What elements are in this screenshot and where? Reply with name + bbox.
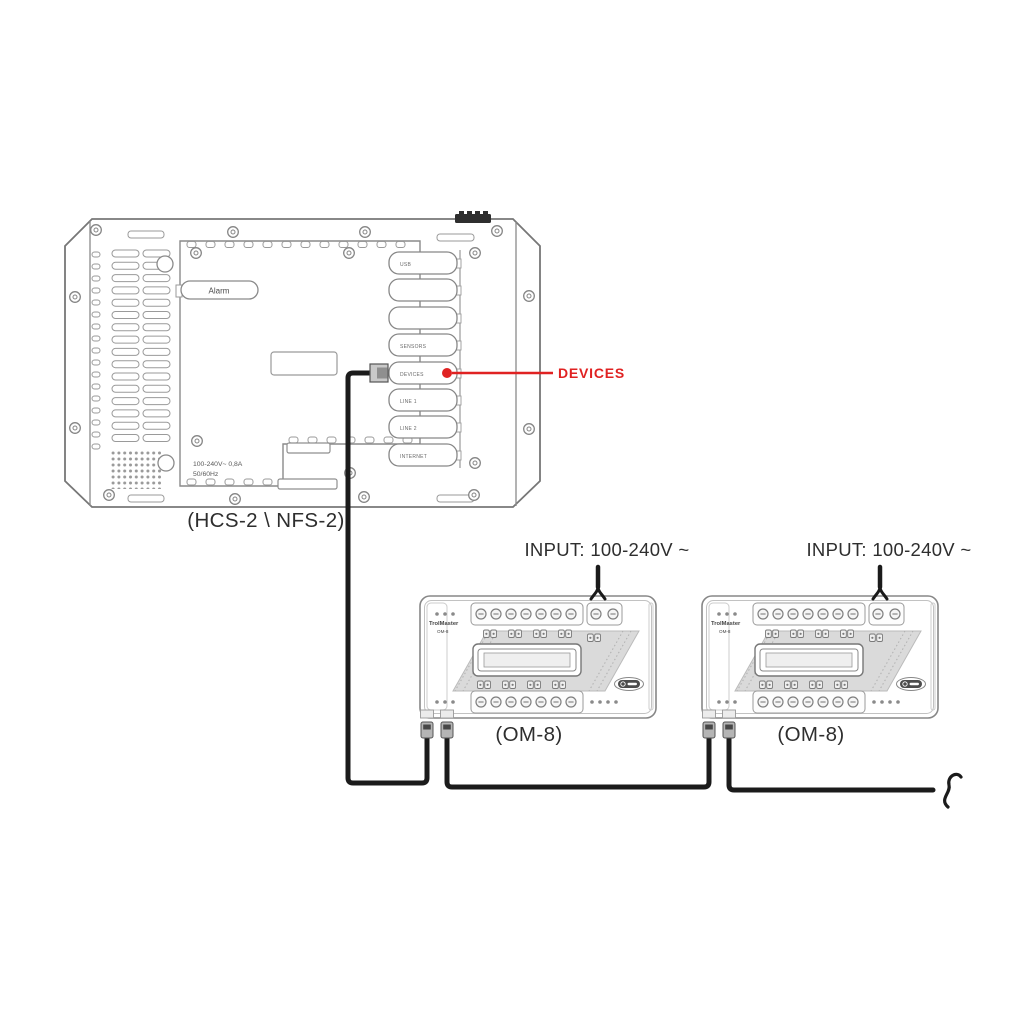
cable-plugs [421,722,735,738]
wiring-diagram: TrolMaster OM-8 [0,0,1024,1024]
port-line1: LINE 1 [389,389,457,411]
svg-text:INTERNET: INTERNET [400,454,427,460]
vent-screw-boss-top [157,256,173,272]
id-label-plate [271,352,337,375]
svg-text:SENSORS: SENSORS [400,344,427,350]
om8-module-2 [702,567,938,718]
vent-screw-boss-bottom [158,455,174,471]
port-blank-1 [389,279,457,301]
port-line2: LINE 2 [389,416,457,438]
input-label-1: INPUT: 100-240V ~ [524,539,689,560]
port-usb: USB [389,252,457,274]
callout-label: DEVICES [558,365,625,381]
input-label-2: INPUT: 100-240V ~ [806,539,971,560]
controller-caption: (HCS-2 \ NFS-2) [187,509,344,532]
om8-module-1 [420,567,656,718]
alarm-label: Alarm [209,287,230,296]
devices-port-plug [370,364,388,382]
power-rating-line1: 100-240V~ 0,8A [193,461,243,468]
svg-text:LINE 1: LINE 1 [400,399,417,405]
svg-text:LINE 2: LINE 2 [400,426,417,432]
port-blank-2 [389,307,457,329]
svg-text:DEVICES: DEVICES [400,372,424,378]
svg-text:USB: USB [400,262,411,268]
om8-caption-1: (OM-8) [495,723,562,746]
callout-dot [442,368,452,378]
port-sensors: SENSORS [389,334,457,356]
continuation-squiggle [945,774,961,807]
alarm-button: Alarm [176,281,258,299]
power-rating-line2: 50/60Hz [193,471,219,478]
controller-panel: Alarm 100-240V~ 0,8A 50/60Hz USB SENSORS [65,211,540,507]
speaker-grid [111,449,161,489]
top-connector [455,211,491,223]
wiring-diagram-canvas: TrolMaster OM-8 [0,0,1024,1024]
om8-caption-2: (OM-8) [777,723,844,746]
port-internet: INTERNET [389,444,457,466]
cable-om8-1-to-om8-2 [447,736,709,787]
